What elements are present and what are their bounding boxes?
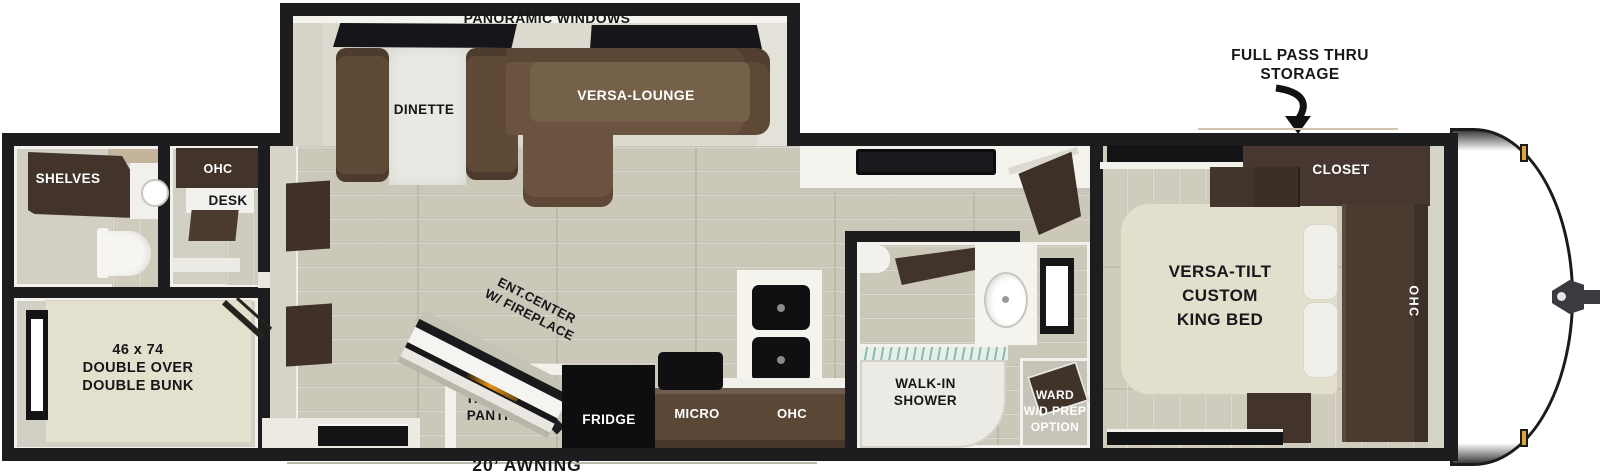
- storage-line: [1198, 128, 1398, 130]
- fridge: [562, 365, 655, 448]
- clearance-light-bottom: [1520, 429, 1528, 447]
- panoramic-window-right: [590, 25, 762, 49]
- top-wall-left-segment: [2, 133, 293, 146]
- hitch-bar: [1580, 290, 1600, 304]
- toilet-bowl: [107, 231, 151, 276]
- bed-overhead-cabinet: [1210, 167, 1300, 207]
- bath-sink-drain: [1002, 296, 1009, 303]
- bath-top-wall: [845, 231, 1020, 242]
- king-bed-label: VERSA-TILT CUSTOM KING BED: [1130, 260, 1310, 332]
- fridge-label: FRIDGE: [568, 412, 650, 428]
- bunk-label: 46 x 74 DOUBLE OVER DOUBLE BUNK: [58, 341, 218, 395]
- bottom-wall: [2, 448, 1458, 461]
- versa-lounge-label: VERSA-LOUNGE: [556, 87, 716, 104]
- kitchen-ohc-label: OHC: [760, 406, 824, 422]
- closet-label: CLOSET: [1296, 162, 1386, 178]
- microwave: [658, 352, 723, 390]
- dinette-label: DINETTE: [364, 102, 484, 118]
- bath-mirror-glass: [1046, 266, 1068, 326]
- entry-step: [318, 424, 408, 446]
- rear-right-wall: [258, 133, 270, 461]
- bunk-window-pane: [31, 319, 43, 411]
- versa-lounge-chaise: [523, 130, 613, 207]
- panoramic-windows-label: PANORAMIC WINDOWS: [447, 10, 647, 27]
- pass-thru-storage-label: FULL PASS THRU STORAGE: [1190, 46, 1410, 84]
- bath-toilet-partial: [860, 245, 890, 273]
- rear-doorway-gap: [258, 272, 270, 288]
- slideout-right-wall: [787, 3, 800, 146]
- micro-label: MICRO: [662, 406, 732, 422]
- walk-in-shower-label: WALK-IN SHOWER: [878, 375, 973, 409]
- front-body-wall: [1443, 133, 1458, 461]
- slideout-left-wall: [280, 3, 293, 146]
- kitchen-window: [856, 149, 996, 175]
- tv-panel-lower: [286, 303, 332, 366]
- shower-glass-band: [860, 344, 1008, 360]
- desk-ohc-label: OHC: [186, 162, 250, 177]
- clearance-light-top: [1520, 144, 1528, 162]
- slideout-wall-face-left: [293, 16, 323, 146]
- rear-divider-horizontal: [2, 287, 270, 298]
- bedroom-ohc-label: OHC: [1406, 274, 1421, 330]
- rv-floorplan: FULL PASS THRU STORAGE 20’ AWNING: [0, 0, 1600, 476]
- bedroom-wall-face-right: [1428, 146, 1444, 448]
- bedroom-window-bottom: [1107, 429, 1283, 445]
- rear-divider-vertical: [158, 146, 170, 294]
- bedroom-window-top: [1107, 145, 1243, 162]
- desk-surface: [188, 210, 238, 241]
- sink-drain-lower: [777, 356, 785, 364]
- rear-bath-sink: [141, 179, 169, 207]
- hitch-ball-dot: [1557, 292, 1566, 301]
- bath-left-wall: [845, 231, 857, 448]
- tv-panel-upper: [286, 180, 330, 251]
- sink-drain-upper: [777, 304, 785, 312]
- ward-label: WARD W/D PREP OPTION: [1013, 387, 1097, 435]
- desk-label: DESK: [196, 193, 260, 209]
- shelves-label: SHELVES: [28, 171, 108, 187]
- desk-return: [172, 258, 240, 272]
